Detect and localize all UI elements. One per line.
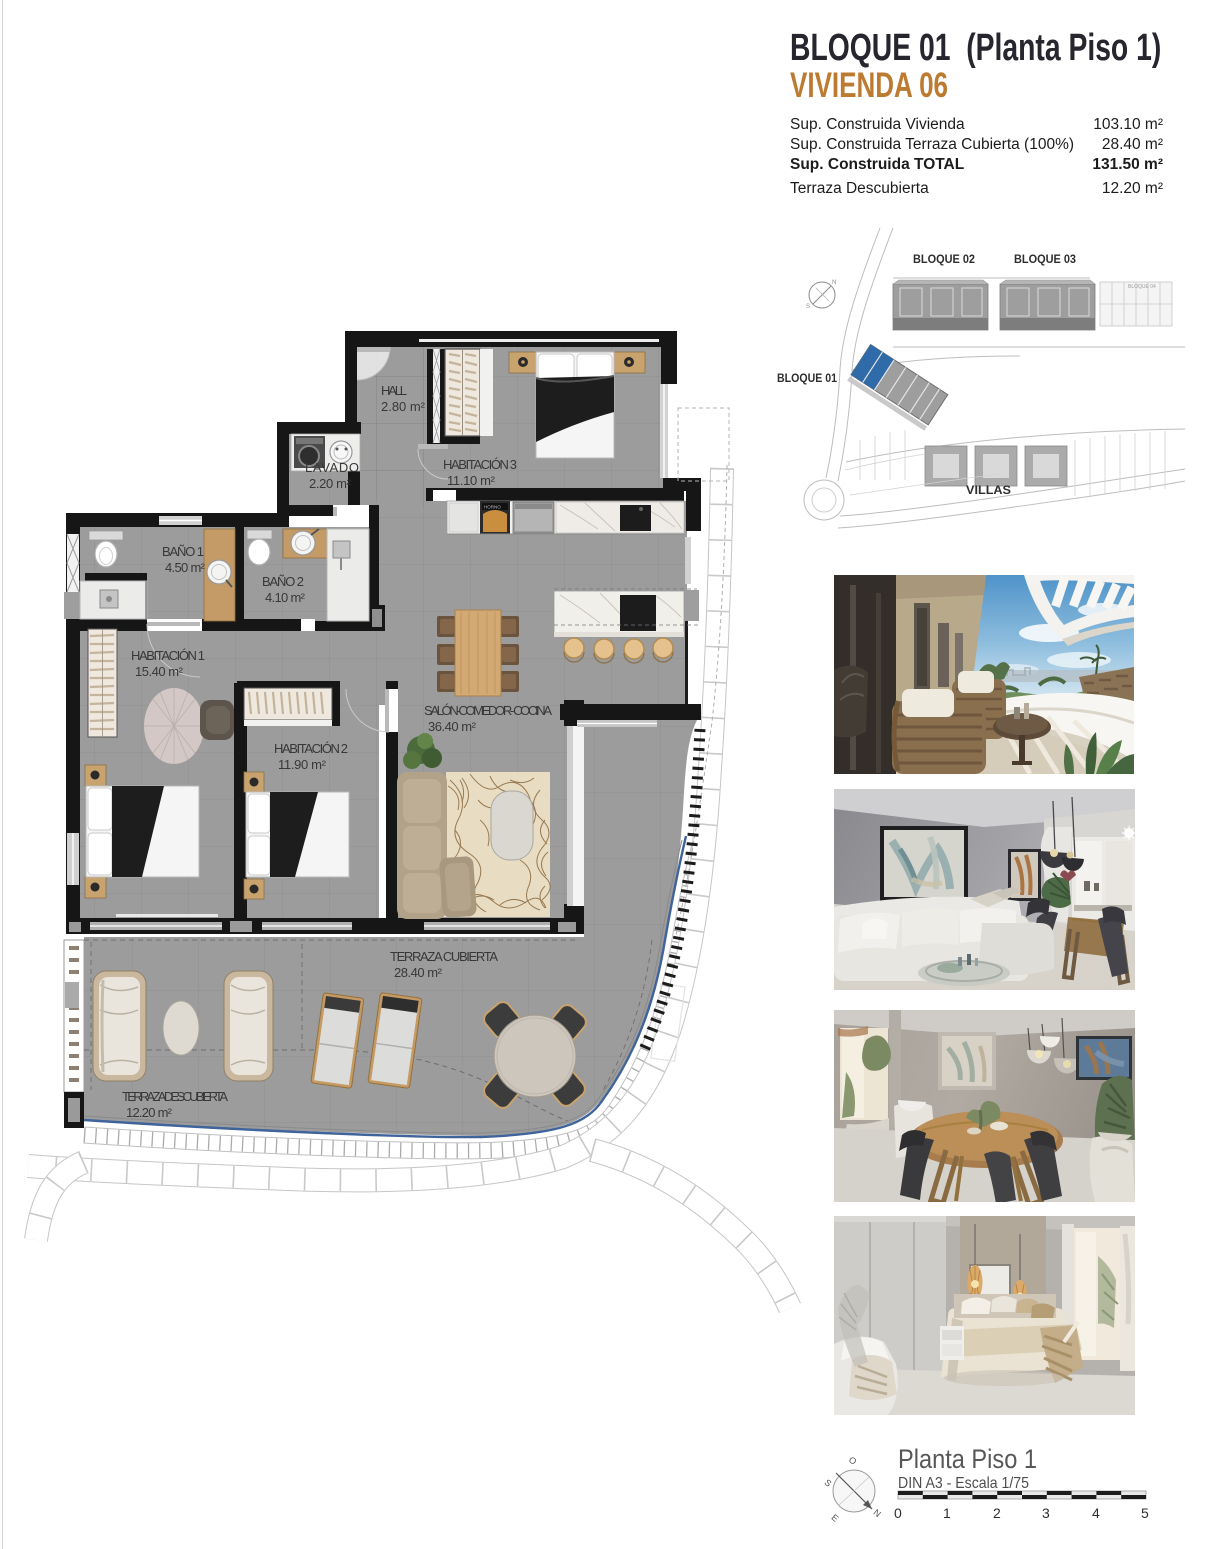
svg-text:BLOQUE 02: BLOQUE 02: [913, 254, 975, 266]
svg-text:S: S: [822, 1477, 833, 1489]
svg-text:2.80 m²: 2.80 m²: [381, 399, 426, 414]
svg-text:11.10 m²: 11.10 m²: [447, 473, 496, 488]
svg-text:4: 4: [1092, 1505, 1100, 1521]
svg-text:11.90 m²: 11.90 m²: [278, 757, 327, 772]
svg-text:SALÓN-COMEDOR- COCINA: SALÓN-COMEDOR- COCINA: [424, 703, 552, 718]
svg-text:4.50 m²: 4.50 m²: [165, 560, 206, 575]
svg-text:TERRAZA DESCUBIERTA: TERRAZA DESCUBIERTA: [122, 1089, 228, 1104]
svg-text:0: 0: [894, 1505, 902, 1521]
svg-text:12.20 m²: 12.20 m²: [126, 1105, 173, 1120]
svg-text:HABITACIÓN 2: HABITACIÓN 2: [274, 741, 348, 756]
svg-text:15.40 m²: 15.40 m²: [135, 664, 184, 679]
svg-text:BLOQUE 03: BLOQUE 03: [1014, 254, 1076, 266]
svg-text:E: E: [829, 1512, 840, 1524]
svg-text:VILLAS: VILLAS: [966, 485, 1011, 497]
svg-text:HABITACIÓN 3: HABITACIÓN 3: [443, 457, 517, 472]
svg-text:36.40 m²: 36.40 m²: [428, 719, 477, 734]
svg-text:2: 2: [993, 1505, 1001, 1521]
svg-text:1: 1: [943, 1505, 951, 1521]
svg-text:S: S: [806, 304, 810, 310]
svg-text:5: 5: [1141, 1505, 1149, 1521]
svg-text:4.10 m²: 4.10 m²: [265, 590, 306, 605]
svg-text:N: N: [832, 280, 836, 286]
svg-text:BLOQUE 01: BLOQUE 01: [777, 373, 838, 385]
svg-text:HORNO: HORNO: [484, 505, 501, 510]
svg-text:HABITACIÓN 1: HABITACIÓN 1: [131, 648, 205, 663]
svg-text:BAÑO 2: BAÑO 2: [262, 574, 304, 589]
svg-text:28.40 m²: 28.40 m²: [394, 965, 443, 980]
svg-text:Planta Piso 1: Planta Piso 1: [898, 1444, 1037, 1474]
svg-text:O: O: [847, 1455, 859, 1467]
svg-text:BAÑO 1: BAÑO 1: [162, 544, 204, 559]
svg-text:DIN A3 - Escala 1/75: DIN A3 - Escala 1/75: [898, 1475, 1029, 1492]
svg-text:3: 3: [1042, 1505, 1050, 1521]
svg-text:2.20 m²: 2.20 m²: [309, 476, 352, 491]
svg-text:LAVADO: LAVADO: [305, 460, 359, 475]
svg-text:TERRAZA CUBIERTA: TERRAZA CUBIERTA: [390, 949, 498, 964]
svg-text:HALL: HALL: [381, 383, 407, 398]
svg-text:BLOQUE 04: BLOQUE 04: [1128, 284, 1156, 290]
svg-text:N: N: [871, 1507, 882, 1519]
